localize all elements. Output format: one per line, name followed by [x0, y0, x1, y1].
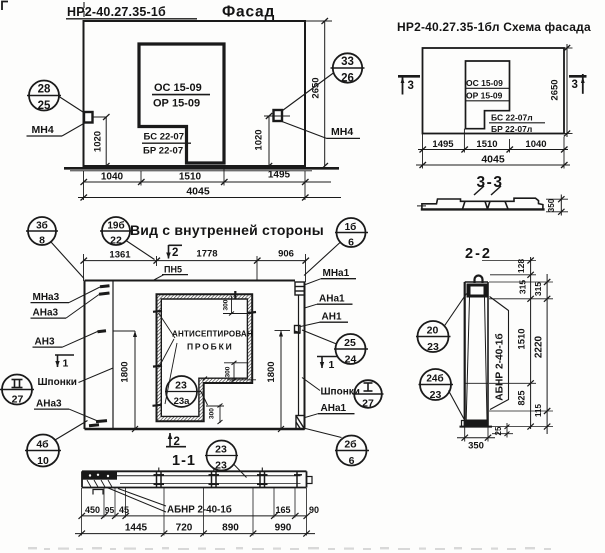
svg-text:ОС 15-09: ОС 15-09: [154, 82, 202, 94]
svg-text:АНа3: АНа3: [36, 399, 62, 410]
svg-text:ОР 15-09: ОР 15-09: [466, 91, 503, 101]
svg-text:8: 8: [39, 235, 45, 247]
svg-text:1800: 1800: [266, 361, 277, 382]
svg-text:ПРОБКИ: ПРОБКИ: [187, 342, 234, 352]
svg-text:1800: 1800: [120, 361, 131, 382]
svg-text:1510: 1510: [179, 172, 202, 183]
svg-text:1020: 1020: [254, 129, 265, 150]
svg-text:4б: 4б: [36, 439, 49, 451]
svg-text:27: 27: [12, 394, 24, 406]
svg-text:1040: 1040: [525, 139, 546, 150]
svg-text:БС 22-07: БС 22-07: [144, 132, 185, 143]
svg-text:23а: 23а: [174, 396, 191, 407]
svg-text:МН4: МН4: [331, 126, 353, 138]
svg-text:90: 90: [309, 505, 319, 515]
svg-text:Шпонки: Шпонки: [38, 377, 77, 388]
svg-text:720: 720: [176, 523, 193, 534]
svg-text:МН4: МН4: [32, 124, 54, 136]
svg-text:20: 20: [427, 325, 439, 337]
svg-text:ОР 15-09: ОР 15-09: [153, 98, 200, 110]
svg-text:НР2-40.27.35-1бл Схема фасада: НР2-40.27.35-1бл Схема фасада: [397, 20, 591, 34]
svg-text:300: 300: [209, 408, 216, 419]
svg-text:2650: 2650: [311, 77, 322, 98]
svg-text:2650: 2650: [550, 79, 561, 100]
svg-text:1510: 1510: [517, 328, 528, 349]
svg-text:3: 3: [408, 80, 414, 92]
svg-text:АНа3: АНа3: [33, 308, 59, 319]
svg-text:ПН5: ПН5: [164, 265, 182, 275]
svg-text:23: 23: [215, 444, 227, 456]
svg-text:24б: 24б: [426, 373, 443, 385]
svg-text:1: 1: [63, 358, 69, 370]
svg-text:128: 128: [516, 259, 526, 273]
svg-text:1495: 1495: [432, 139, 454, 150]
svg-text:45: 45: [119, 505, 129, 515]
svg-text:МНа1: МНа1: [323, 268, 350, 279]
svg-text:115: 115: [534, 403, 543, 416]
svg-text:22: 22: [110, 235, 122, 247]
svg-text:Вид с внутренней стороны: Вид с внутренней стороны: [130, 222, 324, 238]
svg-text:825: 825: [517, 390, 527, 405]
svg-text:19б: 19б: [107, 220, 124, 232]
svg-text:350: 350: [468, 441, 484, 452]
svg-text:1-1: 1-1: [172, 453, 196, 469]
svg-text:АН3: АН3: [35, 337, 55, 348]
svg-text:1040: 1040: [101, 172, 124, 183]
svg-text:26: 26: [341, 73, 354, 85]
svg-text:4045: 4045: [186, 186, 210, 198]
svg-text:1361: 1361: [109, 250, 131, 261]
svg-text:АНа1: АНа1: [321, 403, 347, 414]
svg-text:АНТИСЕПТИРОВАН: АНТИСЕПТИРОВАН: [172, 330, 253, 339]
svg-text:1510: 1510: [476, 139, 497, 150]
svg-text:24: 24: [345, 354, 357, 366]
svg-text:2-2: 2-2: [465, 246, 492, 262]
svg-text:10: 10: [37, 455, 49, 467]
svg-text:350: 350: [547, 198, 556, 212]
svg-text:23: 23: [430, 389, 442, 401]
svg-text:2220: 2220: [534, 335, 545, 358]
svg-text:95: 95: [105, 505, 115, 515]
svg-text:1495: 1495: [268, 170, 291, 181]
svg-text:27: 27: [362, 398, 374, 410]
svg-text:165: 165: [275, 505, 290, 515]
svg-text:3: 3: [572, 79, 578, 91]
svg-text:25: 25: [344, 337, 356, 349]
svg-text:28: 28: [38, 84, 51, 96]
svg-text:450: 450: [85, 505, 100, 515]
svg-text:300: 300: [225, 366, 232, 377]
svg-text:23: 23: [215, 460, 227, 472]
svg-text:6: 6: [348, 237, 354, 249]
svg-text:1020: 1020: [93, 131, 104, 152]
svg-text:1778: 1778: [196, 249, 217, 260]
svg-text:2б: 2б: [344, 439, 357, 451]
svg-text:АНа1: АНа1: [319, 294, 345, 305]
svg-text:890: 890: [222, 523, 239, 534]
svg-text:33: 33: [341, 56, 354, 68]
svg-text:300: 300: [223, 299, 230, 310]
svg-text:1: 1: [329, 359, 335, 371]
svg-text:2: 2: [172, 247, 178, 259]
svg-text:990: 990: [275, 523, 292, 534]
svg-text:3б: 3б: [36, 220, 48, 232]
svg-text:1б: 1б: [345, 221, 357, 233]
svg-text:НР2-40.27.35-1б: НР2-40.27.35-1б: [67, 5, 166, 19]
svg-text:25: 25: [494, 426, 503, 435]
svg-text:Фасад: Фасад: [222, 4, 275, 21]
svg-text:МНа3: МНа3: [33, 292, 60, 303]
svg-text:315: 315: [518, 280, 528, 294]
svg-text:315: 315: [533, 282, 543, 296]
svg-text:906: 906: [278, 249, 294, 260]
svg-text:БР 22-07л: БР 22-07л: [491, 124, 532, 134]
svg-text:23: 23: [427, 341, 439, 353]
svg-text:6: 6: [349, 455, 355, 467]
svg-text:25: 25: [38, 100, 51, 112]
svg-text:1445: 1445: [125, 523, 148, 534]
svg-text:БС 22-07л: БС 22-07л: [491, 113, 533, 123]
svg-text:23: 23: [175, 380, 187, 392]
svg-text:БР 22-07: БР 22-07: [143, 146, 183, 157]
svg-text:АН1: АН1: [322, 312, 342, 323]
svg-text:4045: 4045: [481, 154, 505, 166]
svg-text:АБНР 2-40-1б: АБНР 2-40-1б: [167, 505, 232, 516]
svg-text:2: 2: [174, 436, 180, 448]
svg-text:ОС 15-09: ОС 15-09: [466, 78, 503, 88]
svg-text:АБНР 2-40-1б: АБНР 2-40-1б: [494, 333, 506, 400]
